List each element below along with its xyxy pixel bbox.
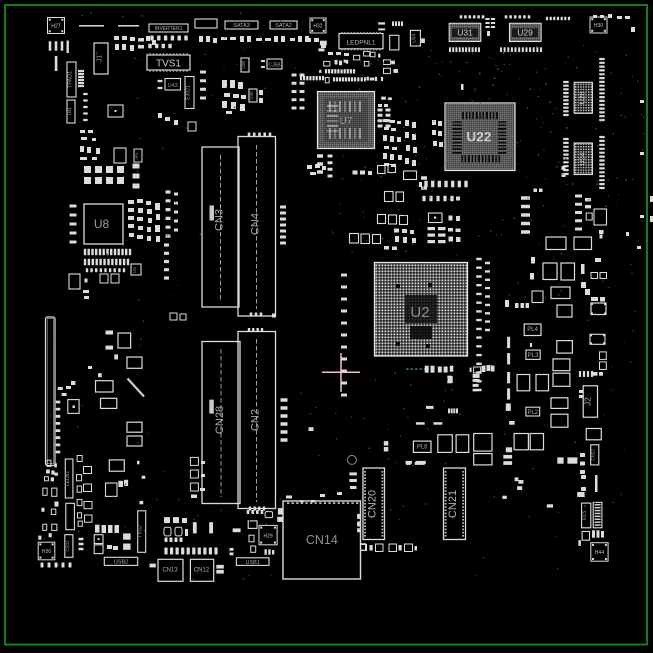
svg-text:LED81: LED81 xyxy=(65,471,71,487)
svg-text:U31: U31 xyxy=(457,28,473,38)
svg-text:TVS1: TVS1 xyxy=(156,59,181,70)
svg-text:CN22: CN22 xyxy=(591,449,596,461)
svg-text:SATA2: SATA2 xyxy=(275,23,292,29)
svg-text:CN3: CN3 xyxy=(214,209,226,231)
svg-text:RL5: RL5 xyxy=(582,511,588,520)
svg-text:LEDPNL1: LEDPNL1 xyxy=(347,40,376,47)
svg-text:PL6: PL6 xyxy=(417,445,428,451)
svg-text:E3021: E3021 xyxy=(186,85,192,100)
svg-text:U24: U24 xyxy=(580,152,587,165)
svg-text:H26: H26 xyxy=(42,549,51,555)
svg-text:CN11: CN11 xyxy=(65,540,70,552)
svg-text:PL3: PL3 xyxy=(528,353,539,359)
svg-text:USB1: USB1 xyxy=(246,560,260,566)
svg-text:CN13: CN13 xyxy=(162,568,178,574)
svg-text:INVERTER1: INVERTER1 xyxy=(155,26,183,32)
svg-text:CN28: CN28 xyxy=(214,406,226,434)
svg-text:CN4: CN4 xyxy=(250,213,262,235)
svg-text:CN12: CN12 xyxy=(194,568,210,574)
svg-text:U34: U34 xyxy=(411,33,417,42)
svg-text:U43: U43 xyxy=(168,83,178,89)
svg-text:PL4: PL4 xyxy=(527,327,538,333)
svg-text:U22: U22 xyxy=(467,130,492,145)
svg-text:U8: U8 xyxy=(94,217,110,231)
svg-text:H30: H30 xyxy=(594,23,603,29)
svg-text:U29: U29 xyxy=(517,28,533,38)
svg-text:CN2: CN2 xyxy=(250,409,262,431)
svg-text:U2: U2 xyxy=(410,304,429,321)
svg-text:H44: H44 xyxy=(595,550,604,556)
svg-text:H32: H32 xyxy=(313,24,322,30)
svg-text:TVS2: TVS2 xyxy=(138,525,144,538)
svg-text:J2: J2 xyxy=(583,397,592,406)
svg-text:CN21: CN21 xyxy=(447,490,459,518)
svg-text:SATA3: SATA3 xyxy=(233,23,250,29)
svg-text:U7: U7 xyxy=(340,116,353,127)
svg-text:CN20: CN20 xyxy=(367,490,379,518)
svg-text:J1: J1 xyxy=(97,55,104,63)
svg-text:U40: U40 xyxy=(249,91,254,100)
svg-text:TB1: TB1 xyxy=(67,107,73,116)
svg-text:CN14: CN14 xyxy=(306,533,338,547)
svg-text:U30: U30 xyxy=(241,60,246,69)
svg-text:H27: H27 xyxy=(51,24,60,30)
svg-text:TPAD1: TPAD1 xyxy=(68,71,74,88)
svg-text:U5: U5 xyxy=(132,267,137,273)
svg-text:USB2: USB2 xyxy=(114,560,128,566)
svg-text:PL2: PL2 xyxy=(527,410,538,416)
svg-text:U26: U26 xyxy=(580,91,587,104)
svg-text:JP4: JP4 xyxy=(134,152,139,160)
svg-text:CJ6B: CJ6B xyxy=(268,63,281,69)
